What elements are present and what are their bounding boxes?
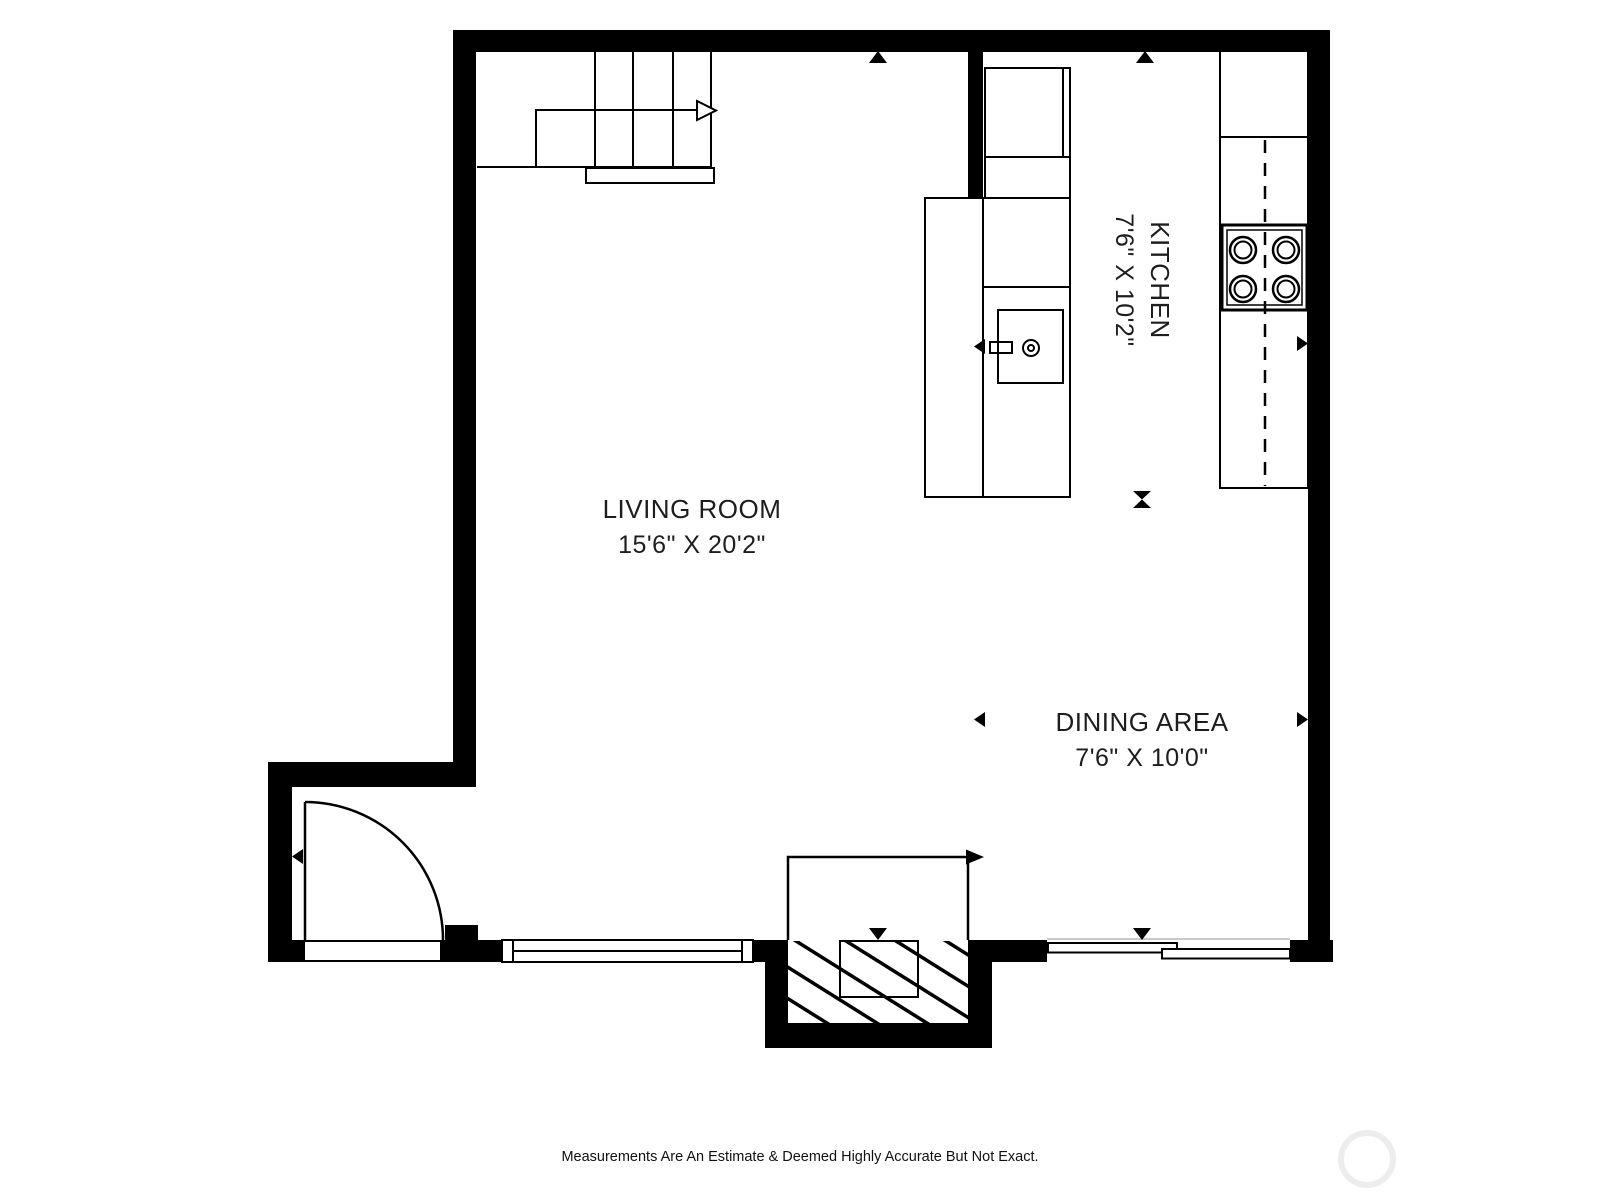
entry-left-wall bbox=[268, 762, 292, 962]
stair-up-arrow-icon bbox=[697, 101, 716, 120]
dining-area-label: DINING AREA 7'6" X 10'0" bbox=[942, 704, 1342, 776]
stair-landing-strip bbox=[586, 168, 714, 183]
burner-icon bbox=[1235, 242, 1252, 259]
right-wall bbox=[1308, 30, 1330, 962]
burner-icon bbox=[1235, 281, 1252, 298]
room-name: LIVING ROOM bbox=[492, 491, 892, 527]
entry-door-swing-arc bbox=[305, 802, 443, 940]
marker-right-icon bbox=[1297, 336, 1308, 351]
stove-burners bbox=[1230, 237, 1299, 302]
room-dimensions: 7'6" X 10'2" bbox=[1106, 180, 1142, 380]
chimney-right-wall bbox=[968, 940, 992, 1048]
chimney-bottom-wall bbox=[765, 1023, 992, 1048]
entry-step-wall bbox=[268, 762, 476, 787]
marker-up-icon bbox=[869, 51, 887, 63]
island-counter-left bbox=[925, 198, 983, 497]
room-name: DINING AREA bbox=[942, 704, 1342, 740]
floor-plan-canvas: LIVING ROOM 15'6" X 20'2" KITCHEN 7'6" X… bbox=[0, 0, 1600, 1200]
marker-hourglass-bottom-icon bbox=[1133, 500, 1151, 509]
staircase bbox=[477, 52, 716, 183]
hearth-arrow-icon bbox=[966, 850, 984, 865]
room-dimensions: 15'6" X 20'2" bbox=[492, 527, 892, 563]
floor-plan-drawing bbox=[0, 0, 1600, 1200]
sink-drain-icon bbox=[1023, 340, 1039, 356]
sink-faucet-icon bbox=[990, 342, 1012, 353]
top-wall bbox=[453, 30, 1330, 52]
cabinet-box bbox=[985, 157, 1070, 198]
kitchen-counter-group bbox=[1220, 50, 1308, 488]
left-wall bbox=[453, 30, 476, 787]
island-counter-right bbox=[983, 198, 1070, 497]
sink-drain-center bbox=[1028, 345, 1034, 351]
kitchen-island-group bbox=[925, 68, 1070, 497]
room-name: KITCHEN bbox=[1142, 180, 1178, 380]
marker-left-icon bbox=[974, 339, 985, 354]
sliding-door-panel bbox=[1048, 943, 1177, 953]
marker-up-icon bbox=[1136, 51, 1154, 63]
marker-down-icon bbox=[869, 928, 887, 940]
kitchen-wall-stub bbox=[968, 30, 983, 197]
kitchen-label: KITCHEN 7'6" X 10'2" bbox=[1106, 180, 1178, 380]
measurement-disclaimer: Measurements Are An Estimate & Deemed Hi… bbox=[400, 1147, 1200, 1167]
watermark-circle bbox=[1341, 1133, 1393, 1185]
burner-icon bbox=[1278, 281, 1295, 298]
refrigerator bbox=[985, 68, 1070, 157]
marker-left-icon bbox=[292, 849, 303, 864]
bottom-wall-hinge-side bbox=[268, 940, 305, 962]
bottom-wall-c bbox=[992, 940, 1047, 962]
sink-basin bbox=[998, 310, 1063, 383]
hearth-outline bbox=[788, 857, 968, 940]
burner-icon bbox=[1278, 242, 1295, 259]
room-dimensions: 7'6" X 10'0" bbox=[942, 740, 1342, 776]
marker-hourglass-top-icon bbox=[1133, 491, 1151, 500]
bottom-wall-corner bbox=[1290, 940, 1333, 962]
sliding-door-panel bbox=[1162, 949, 1290, 959]
bottom-wall-a bbox=[440, 940, 502, 962]
living-room-label: LIVING ROOM 15'6" X 20'2" bbox=[492, 491, 892, 563]
upper-cabinet bbox=[1220, 50, 1308, 137]
